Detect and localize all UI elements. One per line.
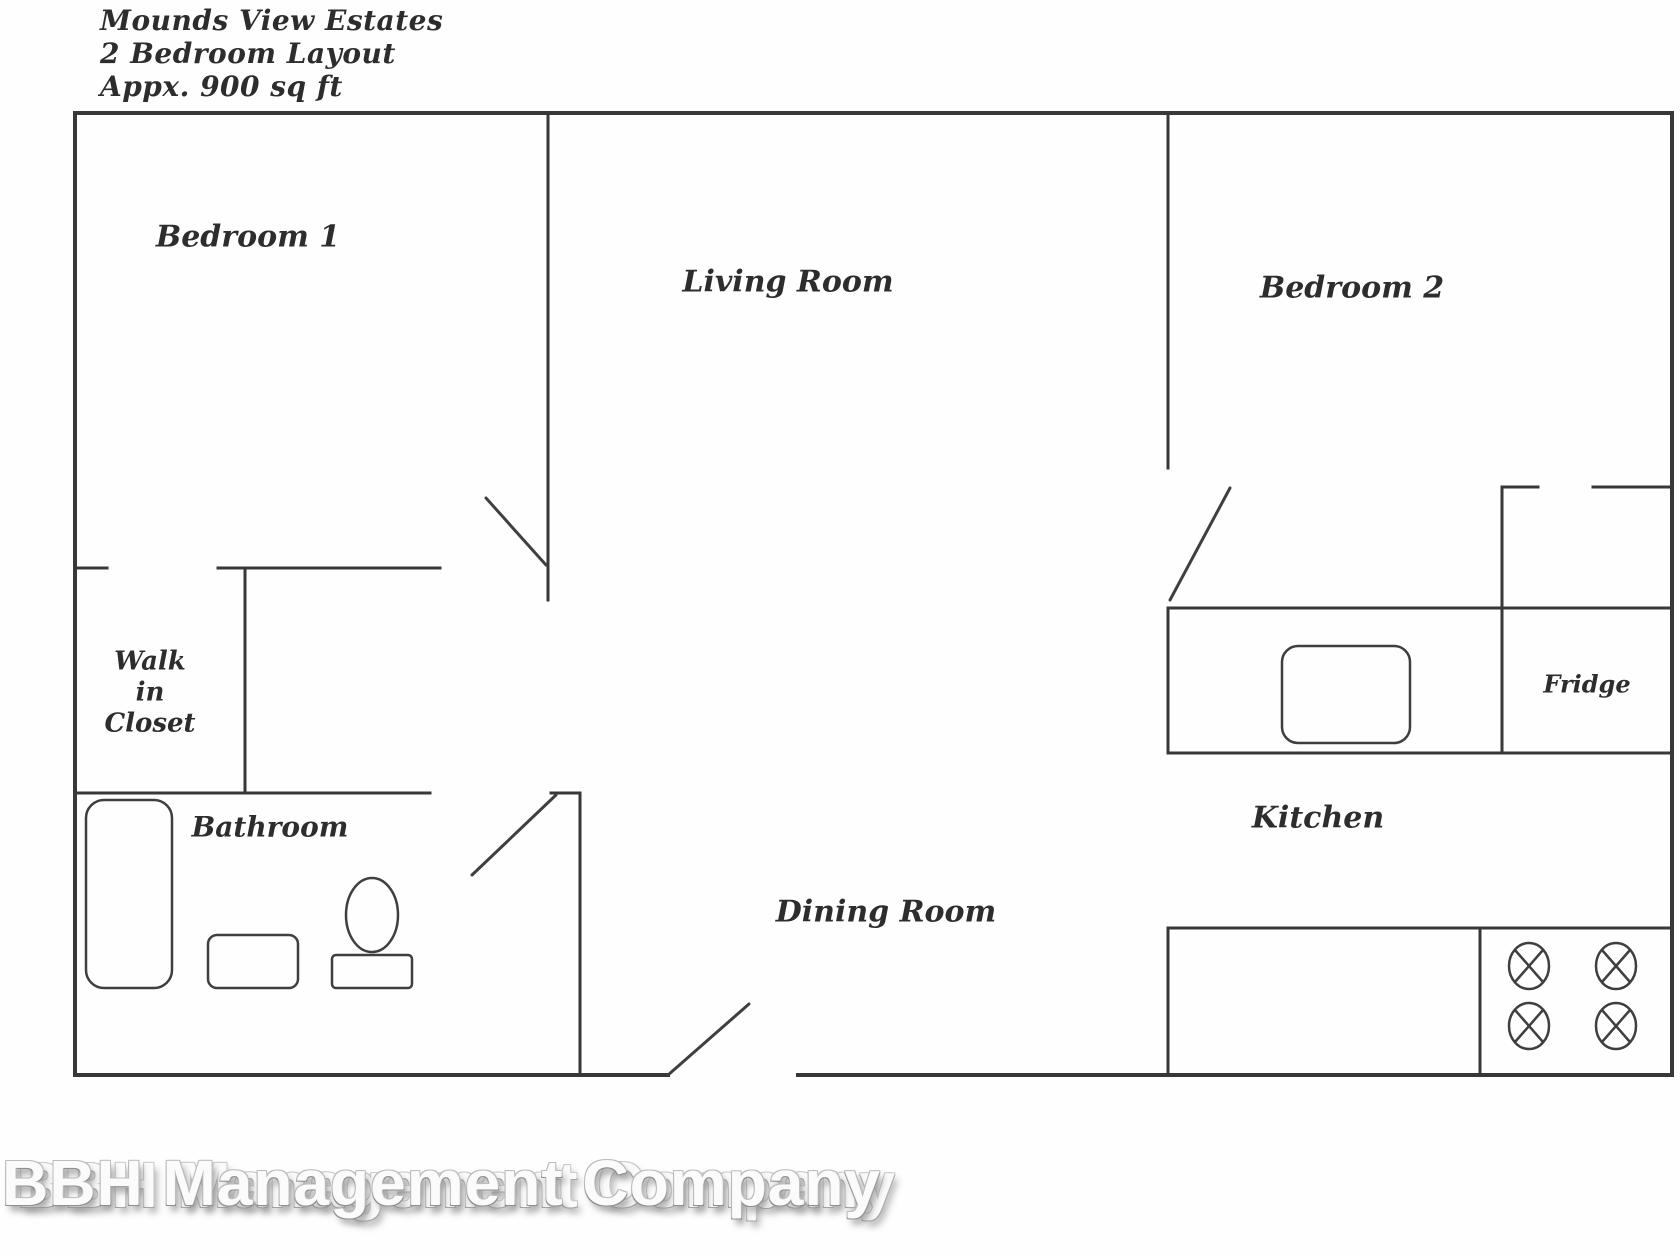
stove-burners-icon	[1509, 943, 1636, 1049]
walls-group	[75, 113, 1672, 1075]
bathroom-door-swing	[472, 795, 556, 875]
room-label-dining-room: Dining Room	[776, 895, 997, 930]
fixtures-group	[86, 646, 1636, 1049]
bathtub-icon	[86, 800, 172, 988]
bedroom2-door-swing	[1170, 488, 1230, 600]
bedroom1-door-swing	[486, 498, 546, 565]
plan-title-area: Appx. 900 sq ft	[100, 70, 443, 103]
room-label-bedroom-2: Bedroom 2	[1260, 271, 1444, 306]
plan-title-name: Mounds View Estates	[100, 4, 443, 37]
room-label-living-room: Living Room	[682, 265, 893, 300]
floor-plan-drawing	[0, 0, 1680, 1254]
walk-in-closet-line: Closet	[104, 709, 195, 740]
entry-door-swing	[668, 1004, 749, 1075]
plan-title: Mounds View Estates 2 Bedroom Layout App…	[100, 4, 443, 103]
plan-title-layout: 2 Bedroom Layout	[100, 37, 443, 70]
room-label-kitchen: Kitchen	[1252, 801, 1384, 836]
kitchen-sink-icon	[1282, 646, 1410, 743]
toilet-bowl-icon	[346, 878, 398, 952]
doors-group	[472, 488, 1230, 1075]
toilet-tank-icon	[332, 955, 412, 988]
floor-plan-page: Mounds View Estates 2 Bedroom Layout App…	[0, 0, 1680, 1254]
walk-in-closet-line: in	[104, 678, 195, 709]
room-label-bathroom: Bathroom	[192, 811, 349, 844]
room-label-fridge: Fridge	[1543, 670, 1630, 699]
bathroom-sink-icon	[208, 935, 298, 988]
room-label-bedroom-1: Bedroom 1	[156, 220, 340, 255]
room-label-walk-in-closet: Walk in Closet	[104, 647, 195, 740]
walk-in-closet-line: Walk	[104, 647, 195, 678]
